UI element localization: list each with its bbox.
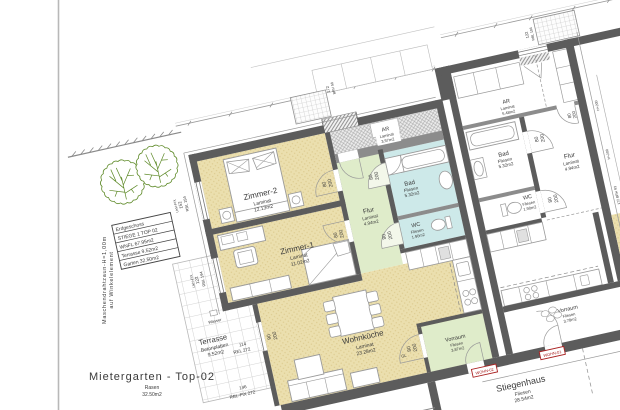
svg-text:Rasen: Rasen — [145, 385, 160, 391]
svg-text:auf Winkelelement: auf Winkelelement — [109, 251, 115, 308]
svg-text:Mietergarten - Top-02: Mietergarten - Top-02 — [89, 371, 215, 383]
svg-text:Maschendrahtzaun-H=1,00m: Maschendrahtzaun-H=1,00m — [102, 236, 108, 324]
svg-text:32.50m2: 32.50m2 — [142, 392, 162, 398]
